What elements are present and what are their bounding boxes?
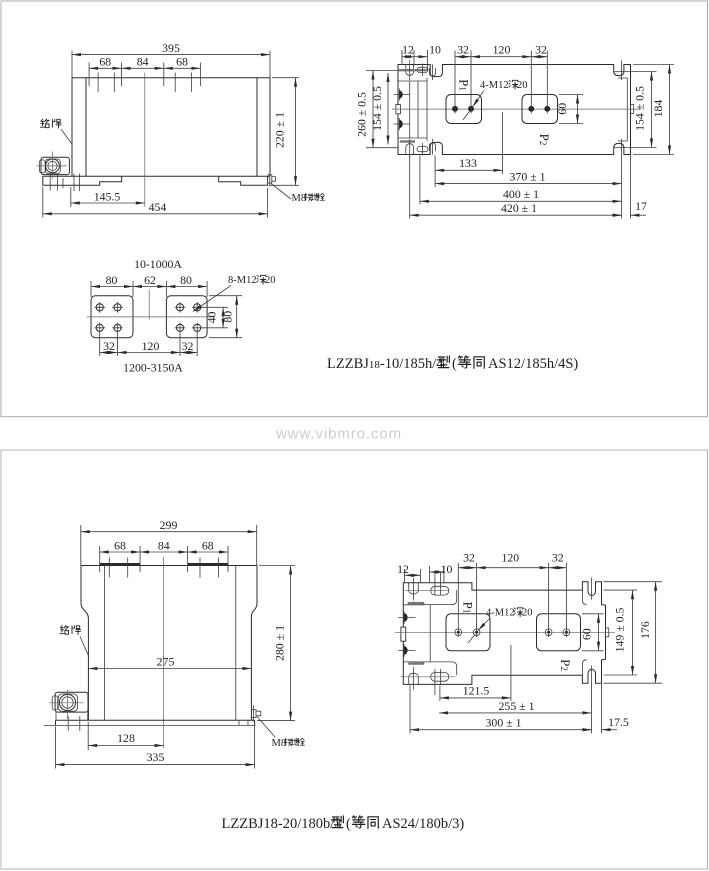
svg-text:10: 10 <box>441 562 453 576</box>
svg-text:280 ± 1: 280 ± 1 <box>273 625 287 661</box>
svg-text:AS24/180b/3): AS24/180b/3) <box>382 816 464 832</box>
svg-text:68: 68 <box>99 55 111 69</box>
svg-text:260 ± 0.5: 260 ± 0.5 <box>355 92 369 137</box>
svg-text:4-M12: 4-M12 <box>486 608 515 619</box>
svg-text:20: 20 <box>517 80 528 91</box>
svg-text:255 ± 1: 255 ± 1 <box>499 699 535 713</box>
svg-text:400 ± 1: 400 ± 1 <box>503 187 539 201</box>
svg-text:120: 120 <box>501 551 519 565</box>
svg-text:20: 20 <box>522 608 533 619</box>
svg-text:420 ± 1: 420 ± 1 <box>501 201 537 215</box>
svg-text:133: 133 <box>459 156 477 170</box>
svg-text:M8: M8 <box>272 738 287 749</box>
svg-text:17.5: 17.5 <box>608 715 629 729</box>
svg-text:12: 12 <box>402 43 414 57</box>
svg-text:32: 32 <box>103 339 115 353</box>
svg-text:(: ( <box>452 356 457 372</box>
svg-text:370 ± 1: 370 ± 1 <box>510 170 546 184</box>
svg-text:www.vibmro.com: www.vibmro.com <box>275 426 402 443</box>
svg-text:121.5: 121.5 <box>463 684 490 698</box>
svg-text:10: 10 <box>429 43 441 57</box>
svg-text:84: 84 <box>137 55 149 69</box>
svg-text:145.5: 145.5 <box>94 189 121 203</box>
svg-text:154 ± 0.5: 154 ± 0.5 <box>370 86 384 131</box>
svg-text:32: 32 <box>457 43 469 57</box>
svg-text:120: 120 <box>142 339 160 353</box>
svg-text:60: 60 <box>580 628 594 640</box>
svg-text:32: 32 <box>535 43 547 57</box>
svg-text:62: 62 <box>144 273 156 287</box>
svg-text:32: 32 <box>552 551 564 565</box>
svg-text:299: 299 <box>160 518 178 532</box>
svg-text:335: 335 <box>147 750 165 764</box>
svg-text:12: 12 <box>397 562 409 576</box>
svg-text:32: 32 <box>463 551 475 565</box>
svg-text:154 ± 0.5: 154 ± 0.5 <box>633 86 647 131</box>
svg-text:184: 184 <box>651 100 665 118</box>
svg-text:176: 176 <box>638 621 652 639</box>
svg-text:454: 454 <box>149 200 167 214</box>
svg-text:M8: M8 <box>292 193 307 204</box>
svg-text:AS12/185h/4S): AS12/185h/4S) <box>488 356 578 372</box>
svg-text:220 ± 1: 220 ± 1 <box>273 112 287 148</box>
svg-text:300 ± 1: 300 ± 1 <box>486 715 522 729</box>
svg-text:128: 128 <box>117 731 135 745</box>
svg-text:(: ( <box>346 816 351 832</box>
svg-text:8-M12: 8-M12 <box>228 275 257 286</box>
svg-text:275: 275 <box>157 655 175 669</box>
svg-text:4-M12: 4-M12 <box>480 80 509 91</box>
svg-text:20: 20 <box>265 275 276 286</box>
svg-text:LZZBJ18-10/185h/4: LZZBJ18-10/185h/4 <box>327 356 444 372</box>
svg-text:LZZBJ18-20/180b/3: LZZBJ18-20/180b/3 <box>222 816 342 832</box>
svg-text:17: 17 <box>635 199 647 213</box>
svg-text:10-1000A: 10-1000A <box>134 257 182 271</box>
svg-text:1200-3150A: 1200-3150A <box>123 361 183 375</box>
svg-text:80: 80 <box>106 273 118 287</box>
svg-text:68: 68 <box>202 538 214 552</box>
svg-text:84: 84 <box>158 538 170 552</box>
svg-text:395: 395 <box>162 41 180 55</box>
svg-text:32: 32 <box>182 339 194 353</box>
svg-text:80: 80 <box>180 273 192 287</box>
svg-text:68: 68 <box>114 538 126 552</box>
svg-text:60: 60 <box>555 103 569 115</box>
svg-text:120: 120 <box>493 43 511 57</box>
svg-text:149 ± 0.5: 149 ± 0.5 <box>613 607 627 652</box>
svg-text:80: 80 <box>221 311 235 323</box>
svg-text:68: 68 <box>176 55 188 69</box>
svg-text:40: 40 <box>205 312 219 324</box>
